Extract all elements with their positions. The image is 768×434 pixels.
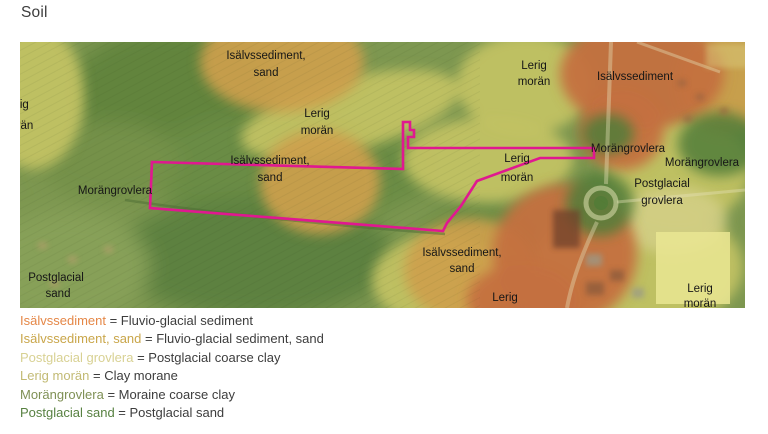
map-label-lerig-moran-midright: morän xyxy=(501,172,534,184)
map-label-lerig-moran-left-clipped: Lerig xyxy=(20,99,29,111)
map-label-lerig-moran-bottomright: morän xyxy=(684,298,717,308)
map-label-isalvssediment-sand-mid: Isälvssediment, xyxy=(230,155,309,167)
legend-term: Isälvssediment, sand xyxy=(20,331,141,346)
legend-term: Lerig morän xyxy=(20,368,89,383)
plough-rows xyxy=(20,42,480,308)
legend-term: Isälvssediment xyxy=(20,313,106,328)
legend-translation: = Fluvio-glacial sediment, sand xyxy=(141,331,323,346)
map-label-lerig-moran-center: Lerig xyxy=(304,108,330,120)
legend-translation: = Postglacial sand xyxy=(115,405,224,420)
map-label-postglacial-sand: Postglacial xyxy=(28,272,84,284)
legend-term: Postglacial sand xyxy=(20,405,115,420)
map-label-lerig-moran-bottomright: Lerig xyxy=(687,283,713,295)
legend-translation: = Moraine coarse clay xyxy=(104,387,235,402)
map-label-isalvssediment-sand-top: sand xyxy=(254,67,279,79)
map-label-isalvssediment-sand-mid: sand xyxy=(258,172,283,184)
map-label-morangrovlera-right2: Morängrovlera xyxy=(665,157,740,169)
legend-row-lerig-moran: Lerig morän = Clay morane xyxy=(20,367,324,385)
legend-translation: = Clay morane xyxy=(89,368,178,383)
legend-translation: = Fluvio-glacial sediment xyxy=(106,313,253,328)
legend-row-isalvssediment: Isälvssediment = Fluvio-glacial sediment xyxy=(20,312,324,330)
map-label-isalvssediment-sand-bottom: sand xyxy=(450,263,475,275)
page: Soil xyxy=(0,0,768,434)
soil-legend: Isälvssediment = Fluvio-glacial sediment… xyxy=(20,312,324,422)
map-label-lerig-moran-topright: morän xyxy=(518,76,551,88)
legend-row-isalvssediment-sand: Isälvssediment, sand = Fluvio-glacial se… xyxy=(20,330,324,348)
map-label-lerig-moran-center: morän xyxy=(301,125,334,137)
map-label-lerig-moran-topright: Lerig xyxy=(521,60,547,72)
page-title: Soil xyxy=(21,4,48,22)
map-label-morangrovlera-left: Morängrovlera xyxy=(78,185,153,197)
map-label-lerig-bottom: Lerig xyxy=(492,292,518,304)
map-label-lerig-moran-left-clipped: morän xyxy=(20,120,33,132)
soil-map-canvas: Lerig morän Isälvssediment, sand Lerig m… xyxy=(20,42,745,308)
map-label-postglacial-grovlera: grovlera xyxy=(641,195,683,207)
roundabout-center xyxy=(594,196,608,210)
map-label-isalvssediment-topright: Isälvssediment xyxy=(597,71,674,83)
map-label-morangrovlera-right1: Morängrovlera xyxy=(591,143,666,155)
map-label-postglacial-grovlera: Postglacial xyxy=(634,178,690,190)
legend-row-postglacial-sand: Postglacial sand = Postglacial sand xyxy=(20,404,324,422)
map-label-lerig-moran-midright: Lerig xyxy=(504,153,530,165)
soil-map: Lerig morän Isälvssediment, sand Lerig m… xyxy=(20,42,745,308)
map-label-isalvssediment-sand-bottom: Isälvssediment, xyxy=(422,247,501,259)
map-label-postglacial-sand: sand xyxy=(46,288,71,300)
map-label-isalvssediment-sand-top: Isälvssediment, xyxy=(226,50,305,62)
legend-term: Postglacial grovlera xyxy=(20,350,133,365)
legend-row-morangrovlera: Morängrovlera = Moraine coarse clay xyxy=(20,386,324,404)
legend-translation: = Postglacial coarse clay xyxy=(133,350,280,365)
legend-row-postglacial-grovlera: Postglacial grovlera = Postglacial coars… xyxy=(20,349,324,367)
legend-term: Morängrovlera xyxy=(20,387,104,402)
